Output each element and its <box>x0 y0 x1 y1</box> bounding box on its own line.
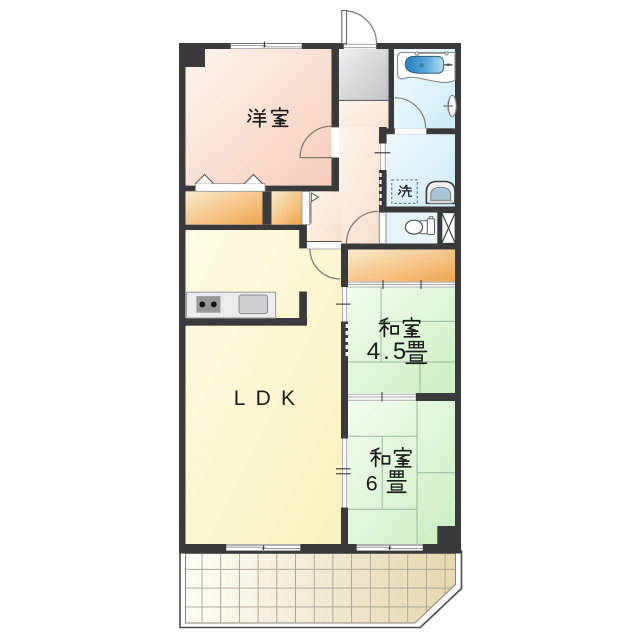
svg-text:6: 6 <box>366 472 378 496</box>
svg-text:4.5: 4.5 <box>367 338 409 365</box>
svg-text:LDK: LDK <box>234 387 305 410</box>
